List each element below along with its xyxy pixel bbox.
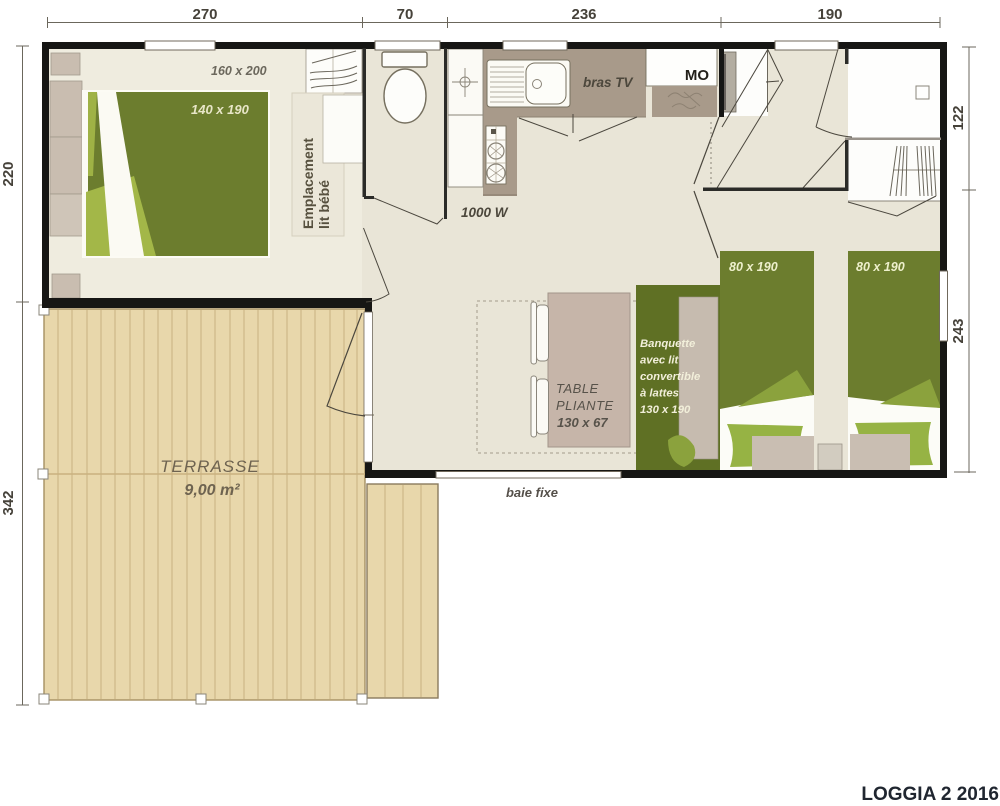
- svg-text:190: 190: [817, 6, 842, 23]
- svg-text:convertible: convertible: [640, 371, 700, 383]
- svg-text:270: 270: [192, 6, 217, 23]
- svg-text:avec lit: avec lit: [640, 355, 680, 367]
- svg-text:LOGGIA 2 2016: LOGGIA 2 2016: [861, 784, 999, 805]
- svg-text:220: 220: [0, 161, 17, 186]
- svg-text:à lattes: à lattes: [640, 388, 679, 400]
- svg-text:PLIANTE: PLIANTE: [556, 398, 614, 413]
- svg-text:TABLE: TABLE: [556, 381, 599, 396]
- svg-text:Emplacement: Emplacement: [300, 138, 316, 229]
- svg-text:bras TV: bras TV: [583, 75, 634, 90]
- svg-text:80 x 190: 80 x 190: [729, 260, 778, 274]
- svg-text:236: 236: [571, 6, 596, 23]
- svg-text:160 x 200: 160 x 200: [211, 64, 267, 78]
- svg-text:MO: MO: [685, 67, 709, 84]
- svg-text:342: 342: [0, 490, 17, 515]
- svg-text:130 x 67: 130 x 67: [557, 415, 608, 430]
- svg-text:9,00 m²: 9,00 m²: [184, 482, 240, 499]
- svg-text:80 x 190: 80 x 190: [856, 260, 905, 274]
- svg-text:TERRASSE: TERRASSE: [160, 457, 260, 476]
- svg-text:baie fixe: baie fixe: [506, 485, 558, 500]
- svg-text:130 x 190: 130 x 190: [640, 404, 691, 416]
- svg-text:243: 243: [950, 318, 967, 343]
- svg-text:122: 122: [950, 105, 967, 130]
- svg-text:140 x 190: 140 x 190: [191, 102, 250, 117]
- svg-text:Banquette: Banquette: [640, 338, 695, 350]
- svg-text:70: 70: [397, 6, 414, 23]
- svg-text:lit bébé: lit bébé: [316, 180, 332, 229]
- svg-text:1000 W: 1000 W: [461, 205, 509, 220]
